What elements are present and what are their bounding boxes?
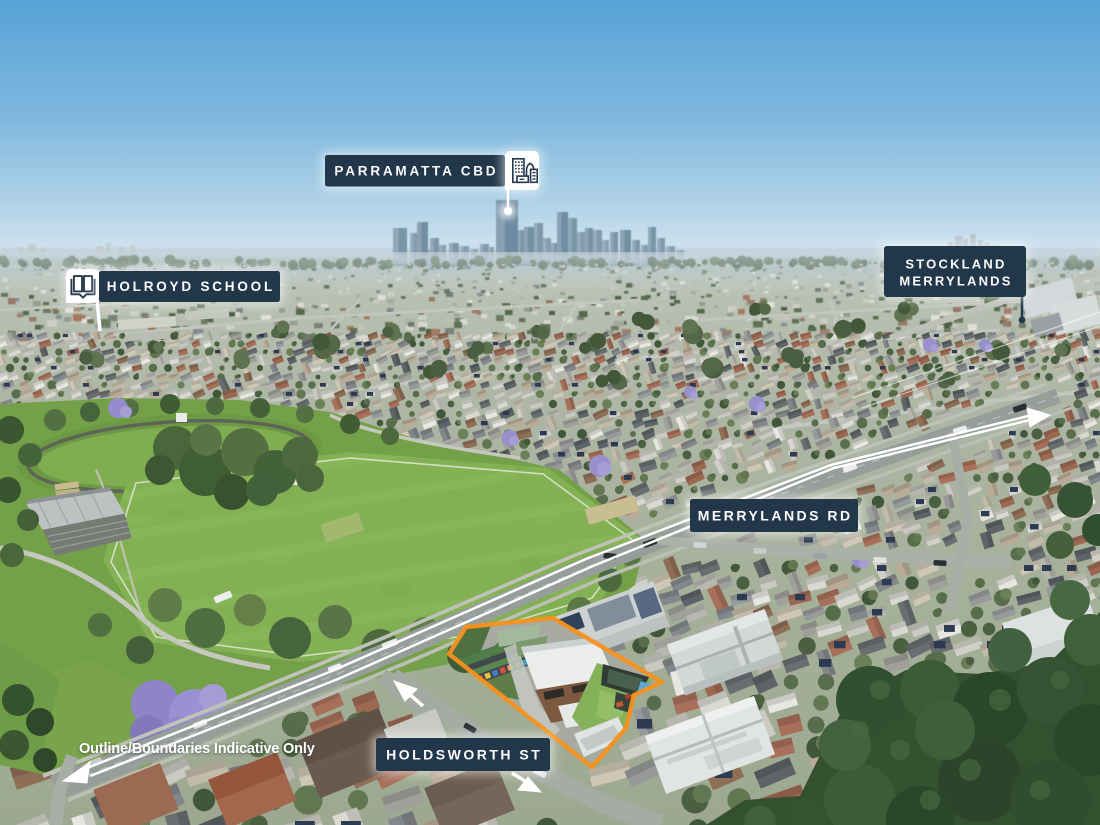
svg-text:MERRYLANDS: MERRYLANDS (899, 274, 1012, 289)
svg-text:STOCKLAND: STOCKLAND (905, 257, 1006, 272)
svg-text:HOLROYD SCHOOL: HOLROYD SCHOOL (107, 279, 275, 294)
svg-text:HOLDSWORTH ST: HOLDSWORTH ST (386, 747, 542, 763)
svg-text:MERRYLANDS RD: MERRYLANDS RD (698, 508, 853, 524)
svg-text:Outline/Boundaries Indicative: Outline/Boundaries Indicative Only (79, 741, 316, 757)
svg-text:PARRAMATTA CBD: PARRAMATTA CBD (334, 163, 498, 178)
